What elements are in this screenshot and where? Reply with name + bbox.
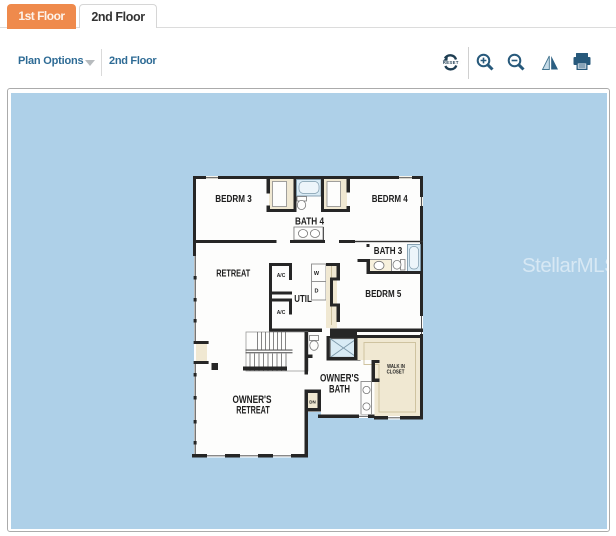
svg-text:BEDRM 5: BEDRM 5 <box>365 289 401 300</box>
svg-text:RETREAT: RETREAT <box>236 405 270 417</box>
svg-text:UTIL: UTIL <box>294 294 312 305</box>
svg-text:CLOSET: CLOSET <box>387 370 405 376</box>
svg-text:D: D <box>315 289 319 295</box>
svg-text:BEDRM 3: BEDRM 3 <box>215 194 252 205</box>
svg-text:W: W <box>314 271 320 277</box>
svg-text:BEDRM 4: BEDRM 4 <box>372 194 408 205</box>
svg-text:BATH 3: BATH 3 <box>374 246 403 257</box>
svg-text:RETREAT: RETREAT <box>216 269 250 280</box>
svg-text:BATH: BATH <box>329 384 350 396</box>
svg-text:DN: DN <box>309 400 316 405</box>
svg-text:BATH 4: BATH 4 <box>295 217 324 228</box>
svg-text:RESET: RESET <box>443 60 459 65</box>
svg-text:A/C: A/C <box>277 273 286 279</box>
svg-text:A/C: A/C <box>277 310 286 316</box>
